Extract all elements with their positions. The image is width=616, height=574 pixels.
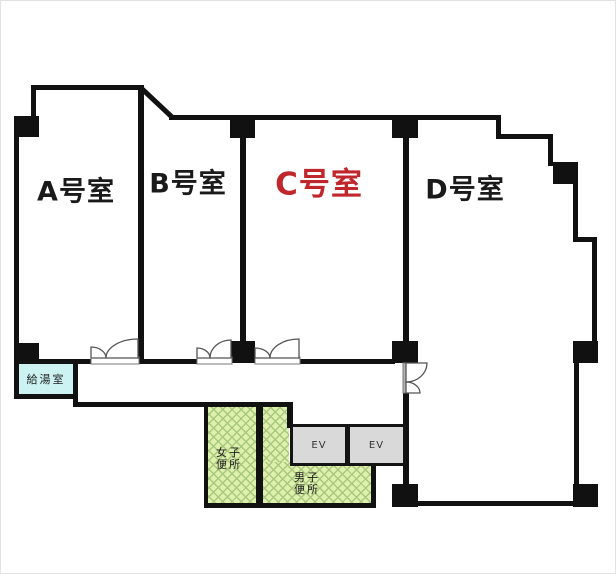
pillar bbox=[573, 484, 598, 507]
mens-toilet-label: 男子 便所 bbox=[294, 472, 320, 496]
wall bbox=[496, 134, 553, 139]
pillar bbox=[392, 484, 418, 507]
door-b-threshold bbox=[197, 357, 232, 364]
wall bbox=[73, 363, 78, 407]
door-a-small-leaf-icon bbox=[91, 347, 106, 358]
room-a-label: A号室 bbox=[37, 170, 115, 209]
wall bbox=[204, 402, 208, 508]
room-c-label: C号室 bbox=[275, 159, 363, 204]
wall bbox=[14, 394, 78, 399]
wall bbox=[138, 85, 144, 361]
pillar bbox=[14, 343, 39, 364]
wall bbox=[240, 115, 246, 345]
door-b-small-leaf-icon bbox=[197, 348, 210, 358]
room-b-label: B号室 bbox=[149, 162, 227, 201]
door-a-threshold bbox=[91, 357, 139, 364]
womens-toilet-label: 女子 便所 bbox=[216, 447, 242, 471]
elevator-2-label: EV bbox=[369, 440, 384, 451]
wall bbox=[371, 462, 376, 507]
elevator-1: EV bbox=[290, 424, 348, 466]
pillar bbox=[230, 115, 255, 138]
wall bbox=[592, 237, 597, 345]
floor-plan: EV EV A号室 B号室 C号室 D号室 給湯室 女子 便所 男子 便所 bbox=[0, 0, 616, 574]
diagonal-wall bbox=[140, 87, 173, 118]
wall bbox=[204, 503, 376, 508]
wall bbox=[31, 85, 143, 90]
pillar bbox=[573, 341, 598, 363]
mens-toilet-area-upper bbox=[262, 406, 289, 464]
wall bbox=[573, 182, 578, 242]
wall bbox=[298, 359, 395, 364]
wall bbox=[403, 115, 409, 363]
door-a-large-leaf-icon bbox=[106, 339, 138, 358]
wall bbox=[169, 115, 499, 120]
wall bbox=[574, 361, 579, 488]
wall bbox=[256, 402, 263, 508]
pillar bbox=[14, 116, 39, 137]
door-d-large-leaf-icon bbox=[406, 363, 427, 382]
door-d-panel bbox=[403, 363, 410, 393]
door-b-large-leaf-icon bbox=[210, 340, 231, 358]
elevator-1-label: EV bbox=[311, 440, 326, 451]
pillar bbox=[392, 341, 418, 363]
wall bbox=[31, 85, 36, 118]
door-c-threshold bbox=[255, 357, 300, 364]
pillar bbox=[392, 115, 418, 138]
wall bbox=[137, 359, 197, 364]
pillar bbox=[231, 341, 255, 363]
elevator-2: EV bbox=[347, 424, 406, 466]
mens-toilet-label-line2: 便所 bbox=[294, 484, 320, 496]
kitchen-label: 給湯室 bbox=[27, 371, 66, 387]
pillar bbox=[553, 162, 578, 184]
room-d-label: D号室 bbox=[425, 168, 504, 207]
wall bbox=[392, 501, 598, 506]
door-c-large-leaf-icon bbox=[270, 339, 299, 358]
door-c-small-leaf-icon bbox=[255, 348, 270, 358]
womens-toilet-label-line2: 便所 bbox=[216, 459, 242, 471]
